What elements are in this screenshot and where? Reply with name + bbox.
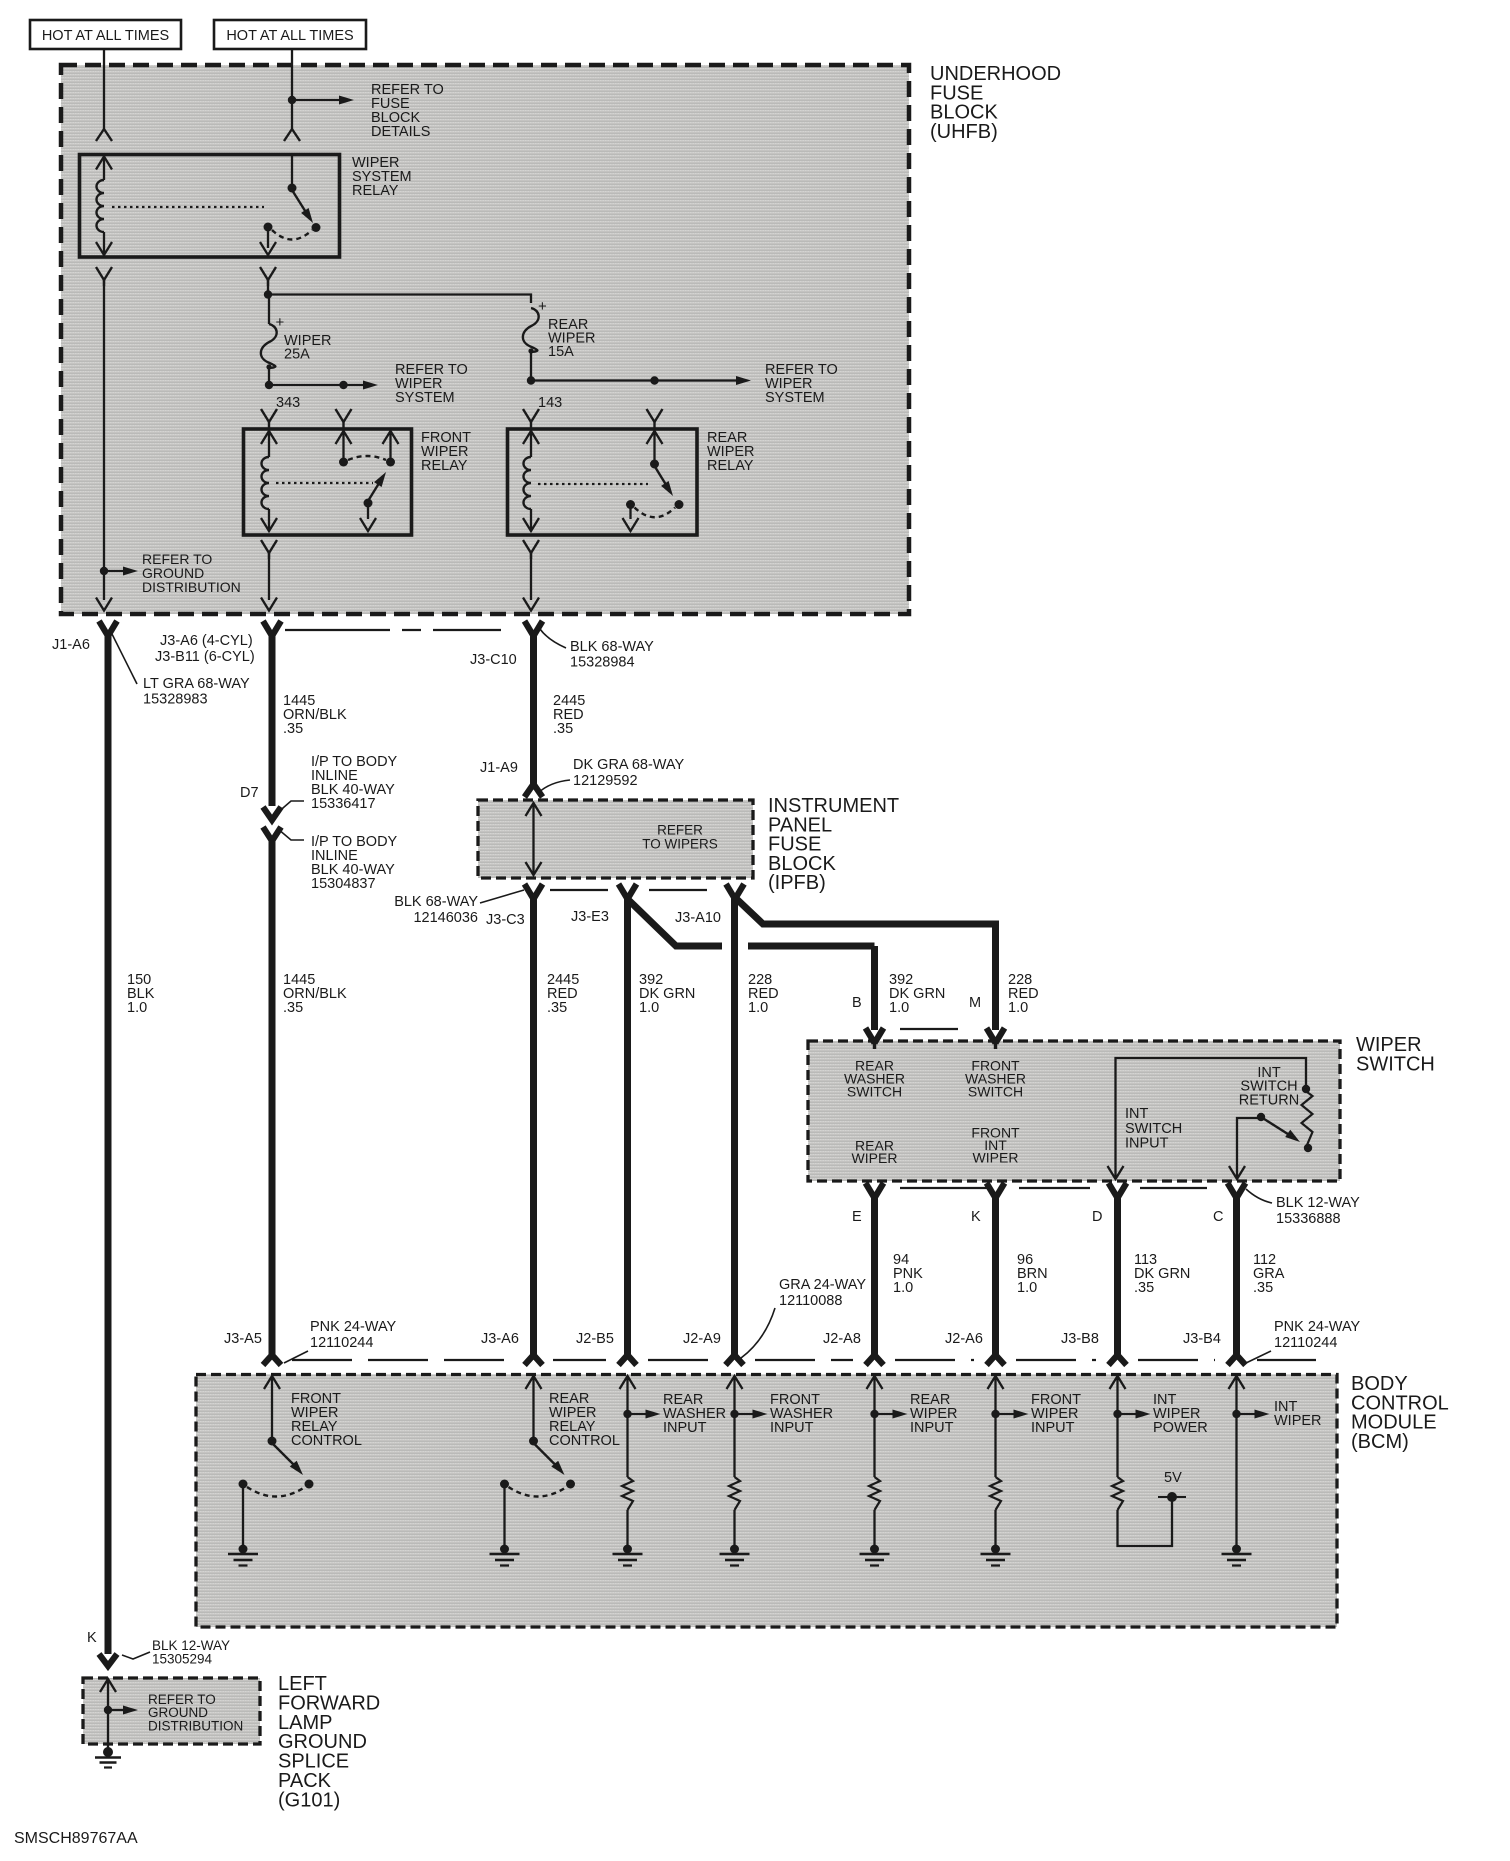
svg-text:BODYCONTROLMODULE(BCM): BODYCONTROLMODULE(BCM): [1351, 1373, 1449, 1453]
svg-text:5V: 5V: [1164, 1470, 1182, 1486]
svg-text:B: B: [852, 995, 862, 1011]
svg-text:392DK GRN1.0: 392DK GRN1.0: [889, 972, 945, 1016]
svg-text:REFER: REFER: [657, 823, 703, 838]
svg-text:J3-E3: J3-E3: [571, 909, 609, 925]
svg-text:REARWIPER: REARWIPER: [852, 1138, 898, 1166]
svg-text:J3-B4: J3-B4: [1183, 1331, 1221, 1347]
svg-text:FRONTWASHERSWITCH: FRONTWASHERSWITCH: [965, 1058, 1026, 1100]
svg-text:113DK GRN.35: 113DK GRN.35: [1134, 1252, 1190, 1296]
svg-text:BLK 12-WAY15336888: BLK 12-WAY15336888: [1276, 1195, 1360, 1227]
svg-text:2445RED.35: 2445RED.35: [553, 693, 585, 737]
svg-text:J3-A6 (4-CYL): J3-A6 (4-CYL): [160, 633, 253, 649]
svg-text:J3-C3: J3-C3: [486, 912, 525, 928]
svg-text:BLK 68-WAY15328984: BLK 68-WAY15328984: [570, 639, 654, 671]
svg-text:K: K: [971, 1209, 981, 1225]
svg-text:228RED1.0: 228RED1.0: [1008, 972, 1039, 1016]
svg-text:UNDERHOODFUSEBLOCK(UHFB): UNDERHOODFUSEBLOCK(UHFB): [930, 63, 1061, 143]
svg-text:TO WIPERS: TO WIPERS: [642, 837, 718, 852]
svg-text:112GRA.35: 112GRA.35: [1253, 1252, 1285, 1296]
svg-text:PNK 24-WAY12110244: PNK 24-WAY12110244: [1274, 1319, 1361, 1351]
svg-text:J1-A9: J1-A9: [480, 760, 518, 776]
svg-text:LEFTFORWARDLAMPGROUNDSPLICEPAC: LEFTFORWARDLAMPGROUNDSPLICEPACK(G101): [278, 1673, 380, 1811]
svg-text:J2-A9: J2-A9: [683, 1331, 721, 1347]
svg-text:343: 343: [276, 395, 300, 411]
svg-text:E: E: [852, 1209, 862, 1225]
svg-text:HOT AT ALL TIMES: HOT AT ALL TIMES: [42, 28, 169, 44]
svg-text:J1-A6: J1-A6: [52, 637, 90, 653]
svg-text:DK GRA 68-WAY12129592: DK GRA 68-WAY12129592: [573, 757, 685, 789]
svg-text:K: K: [87, 1630, 97, 1646]
svg-text:2445RED.35: 2445RED.35: [547, 972, 579, 1016]
svg-text:J3-B11 (6-CYL): J3-B11 (6-CYL): [155, 649, 255, 665]
svg-text:392DK GRN1.0: 392DK GRN1.0: [639, 972, 695, 1016]
svg-text:HOT AT ALL TIMES: HOT AT ALL TIMES: [226, 28, 353, 44]
svg-text:PNK 24-WAY12110244: PNK 24-WAY12110244: [310, 1319, 397, 1351]
svg-text:M: M: [969, 995, 981, 1011]
svg-text:96BRN1.0: 96BRN1.0: [1017, 1252, 1048, 1296]
svg-text:FRONTWIPERRELAY: FRONTWIPERRELAY: [421, 430, 471, 474]
svg-text:GRA 24-WAY12110088: GRA 24-WAY12110088: [779, 1277, 866, 1309]
svg-text:J3-C10: J3-C10: [470, 652, 517, 668]
svg-text:J2-A6: J2-A6: [945, 1331, 983, 1347]
svg-text:J3-A5: J3-A5: [224, 1331, 262, 1347]
svg-text:BLK 68-WAY12146036: BLK 68-WAY12146036: [394, 894, 478, 926]
svg-text:SMSCH89767AA: SMSCH89767AA: [14, 1830, 138, 1847]
svg-text:143: 143: [538, 395, 562, 411]
svg-text:BLK 12-WAY15305294: BLK 12-WAY15305294: [152, 1638, 230, 1667]
svg-text:LT GRA 68-WAY15328983: LT GRA 68-WAY15328983: [143, 676, 250, 708]
svg-text:150BLK1.0: 150BLK1.0: [127, 972, 155, 1016]
svg-text:94PNK1.0: 94PNK1.0: [893, 1252, 923, 1296]
svg-text:J3-A10: J3-A10: [675, 910, 721, 926]
svg-text:I/P TO BODYINLINEBLK 40-WAY153: I/P TO BODYINLINEBLK 40-WAY15336417: [311, 754, 398, 812]
svg-text:FRONTWIPERINPUT: FRONTWIPERINPUT: [1031, 1392, 1081, 1436]
svg-text:J2-B5: J2-B5: [576, 1331, 614, 1347]
svg-text:J3-B8: J3-B8: [1061, 1331, 1099, 1347]
svg-text:C: C: [1213, 1209, 1223, 1225]
svg-text:1445ORN/BLK.35: 1445ORN/BLK.35: [283, 972, 347, 1016]
svg-text:1445ORN/BLK.35: 1445ORN/BLK.35: [283, 693, 347, 737]
svg-text:INSTRUMENTPANELFUSEBLOCK(IPFB): INSTRUMENTPANELFUSEBLOCK(IPFB): [768, 795, 899, 894]
svg-text:J3-A6: J3-A6: [481, 1331, 519, 1347]
svg-text:+: +: [538, 298, 547, 315]
svg-text:D7: D7: [240, 785, 259, 801]
svg-text:D: D: [1092, 1209, 1102, 1225]
svg-text:J2-A8: J2-A8: [823, 1331, 861, 1347]
svg-text:228RED1.0: 228RED1.0: [748, 972, 779, 1016]
svg-text:I/P TO BODYINLINEBLK 40-WAY153: I/P TO BODYINLINEBLK 40-WAY15304837: [311, 834, 398, 892]
svg-text:WIPERSWITCH: WIPERSWITCH: [1356, 1034, 1435, 1075]
